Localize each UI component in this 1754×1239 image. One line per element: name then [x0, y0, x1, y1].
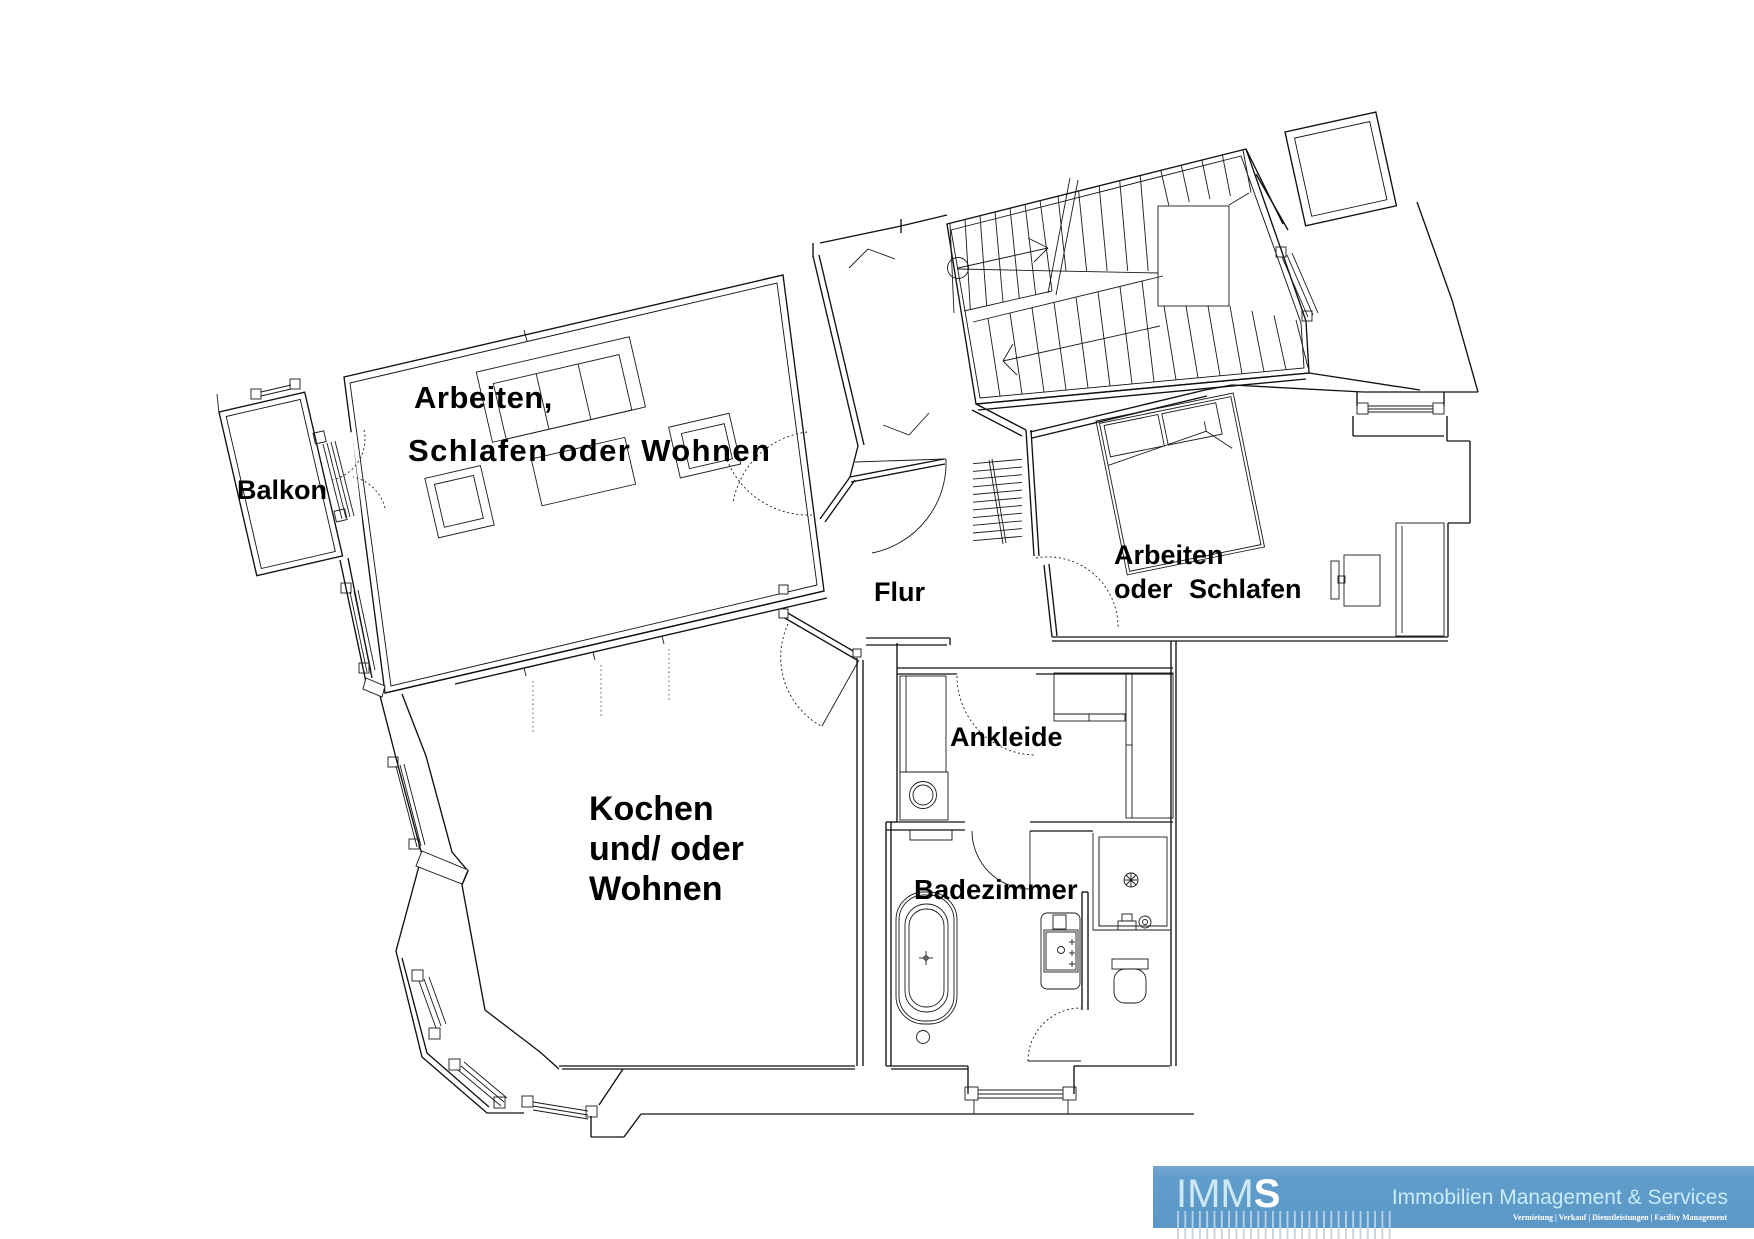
svg-text:Flur: Flur — [874, 577, 925, 607]
svg-text:Schlafen oder Wohnen: Schlafen oder Wohnen — [408, 433, 771, 468]
svg-text:Ankleide: Ankleide — [950, 722, 1063, 752]
svg-text:Arbeiten: Arbeiten — [1114, 540, 1224, 570]
svg-text:Immobilien Management & Servic: Immobilien Management & Services — [1392, 1186, 1728, 1209]
svg-text:und/ oder: und/ oder — [589, 830, 744, 868]
svg-text:Kochen: Kochen — [589, 790, 714, 828]
svg-text:Vermietung | Verkauf | Dienstl: Vermietung | Verkauf | Dienstleistungen … — [1513, 1213, 1727, 1222]
svg-text:Badezimmer: Badezimmer — [914, 874, 1078, 905]
svg-text:Schlafen: Schlafen — [1189, 574, 1302, 604]
svg-text:Arbeiten,: Arbeiten, — [414, 380, 553, 415]
svg-text:Balkon: Balkon — [237, 475, 327, 505]
svg-text:Wohnen: Wohnen — [589, 870, 722, 908]
svg-text:IMMS: IMMS — [1176, 1172, 1280, 1216]
svg-text:oder: oder — [1114, 574, 1173, 604]
